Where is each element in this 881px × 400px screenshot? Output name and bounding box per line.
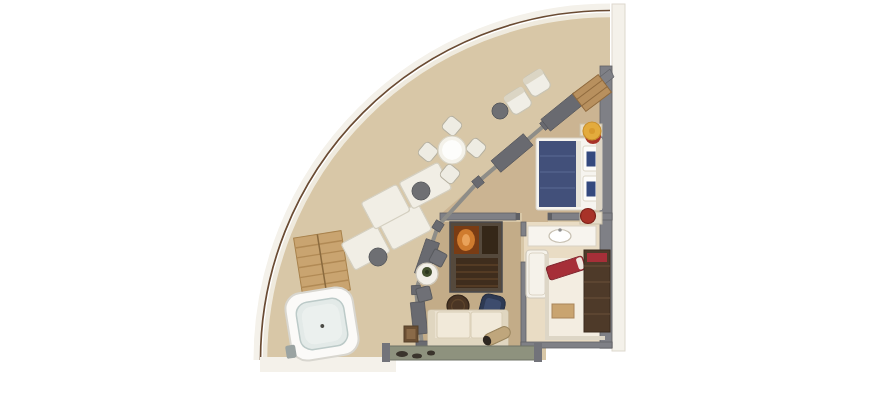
pillow-blue-panel (587, 152, 596, 167)
dining-table-top (442, 140, 462, 160)
decor-item (412, 354, 422, 359)
hot-tub (277, 285, 361, 364)
lounger-side-table-2 (369, 248, 387, 266)
blanket-fold (576, 141, 581, 207)
balcony-bottom-band (260, 357, 396, 372)
yellow-chair-center (589, 128, 595, 134)
side-table-top (407, 329, 416, 339)
outside-below-band (258, 372, 400, 400)
decor-item (396, 351, 408, 357)
wardrobe-red-item (587, 253, 607, 262)
bathroom-wall-upper (521, 222, 526, 236)
tv-bar-cabinet (450, 222, 502, 292)
closet-bench (552, 304, 574, 318)
lounger-side-table-1 (412, 182, 430, 200)
sofa-armrest-left (428, 310, 435, 348)
balcony-side-table (492, 103, 508, 119)
table-plant-center (425, 270, 429, 274)
right-outer-wall (612, 4, 625, 351)
double-bed (536, 138, 602, 210)
hot-tub-step (285, 344, 297, 358)
sofa-cushion (437, 312, 470, 338)
window-ledge (386, 346, 540, 360)
wardrobe (584, 250, 610, 332)
decor-item (427, 351, 435, 356)
suite-floorplan (0, 0, 881, 400)
door-jamb-left (516, 213, 520, 220)
cabinet-lower (456, 258, 498, 288)
headboard (596, 138, 602, 210)
cabinet-glow-core (462, 234, 470, 246)
closet-wall-horizontal (545, 336, 605, 340)
floorplan-canvas (0, 0, 881, 400)
bistro-chair-seat (416, 286, 433, 303)
ledge-cap-left (382, 343, 390, 362)
outside-corner (546, 348, 616, 364)
bedroom-doorway-floor (522, 213, 548, 222)
cabinet-shelf-dark (482, 226, 498, 254)
door-jamb-right (548, 213, 552, 220)
sink-faucet (558, 228, 562, 232)
red-stool (581, 209, 596, 224)
pillow-blue-panel (587, 182, 596, 197)
bed-blanket (539, 141, 576, 207)
ledge-cap-right (534, 343, 542, 362)
bathroom-wall-lower (521, 262, 526, 348)
outside-right (614, 0, 881, 400)
bistro-chair (416, 286, 433, 303)
outside-bottom (386, 362, 616, 400)
